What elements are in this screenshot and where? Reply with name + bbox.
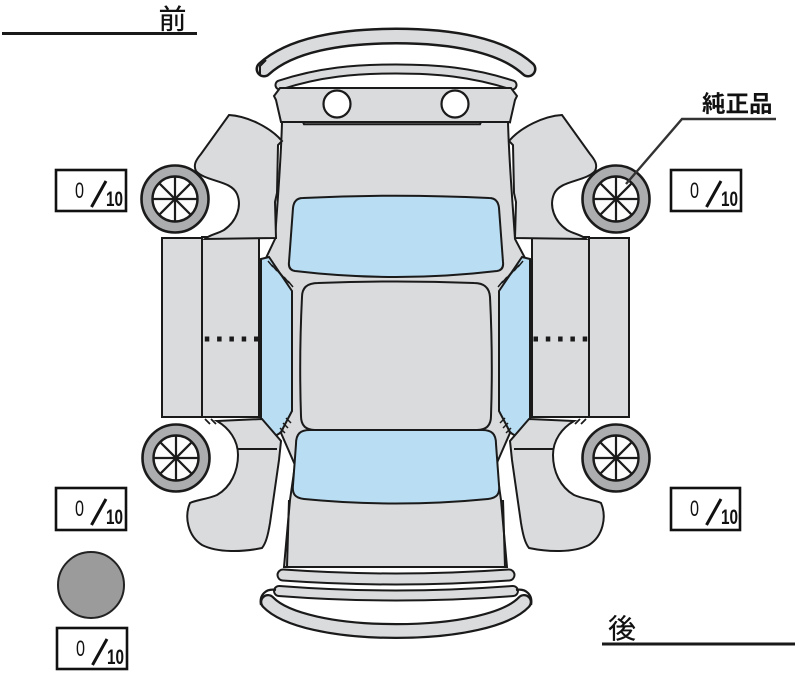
svg-text:10: 10	[721, 188, 738, 211]
svg-text:0: 0	[75, 496, 84, 521]
svg-text:0: 0	[690, 178, 699, 203]
svg-text:0: 0	[75, 178, 84, 203]
svg-text:0: 0	[76, 636, 85, 661]
svg-text:10: 10	[106, 506, 123, 529]
svg-text:10: 10	[106, 188, 123, 211]
svg-text:10: 10	[107, 646, 124, 669]
svg-text:0: 0	[690, 496, 699, 521]
svg-text:10: 10	[721, 506, 738, 529]
